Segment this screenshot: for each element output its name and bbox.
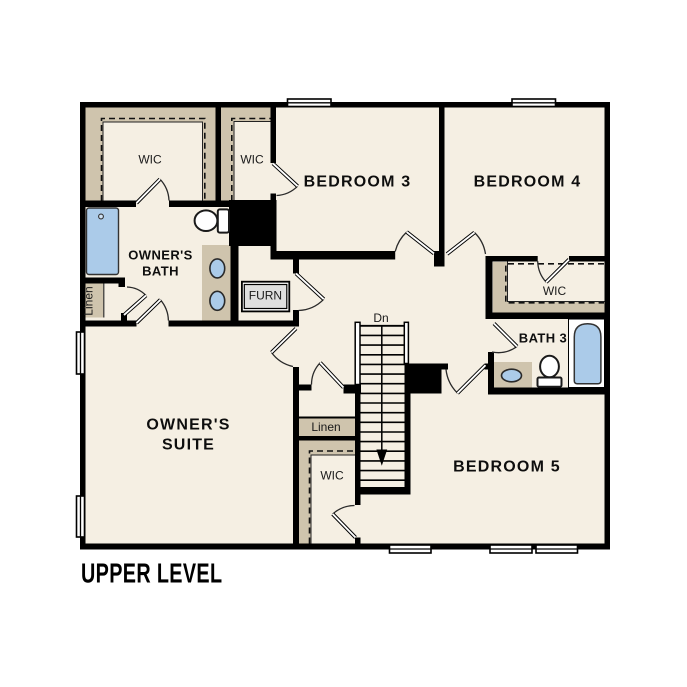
svg-text:UPPER LEVEL: UPPER LEVEL	[81, 558, 222, 589]
svg-text:BEDROOM 5: BEDROOM 5	[453, 459, 561, 476]
svg-text:BEDROOM 3: BEDROOM 3	[304, 174, 412, 191]
svg-text:BATH 3: BATH 3	[519, 330, 567, 345]
svg-text:WIC: WIC	[320, 469, 344, 483]
svg-text:Linen: Linen	[311, 420, 340, 434]
svg-text:SUITE: SUITE	[162, 437, 215, 454]
svg-text:BEDROOM 4: BEDROOM 4	[474, 174, 582, 191]
svg-text:WIC: WIC	[240, 153, 264, 167]
svg-text:OWNER'S: OWNER'S	[146, 417, 230, 434]
svg-text:WIC: WIC	[543, 284, 567, 298]
svg-text:Linen: Linen	[82, 286, 96, 315]
svg-text:OWNER'S: OWNER'S	[128, 248, 192, 263]
svg-text:Dn: Dn	[373, 311, 388, 325]
svg-text:FURN: FURN	[249, 288, 282, 302]
svg-text:WIC: WIC	[138, 153, 162, 167]
svg-text:BATH: BATH	[142, 264, 179, 279]
